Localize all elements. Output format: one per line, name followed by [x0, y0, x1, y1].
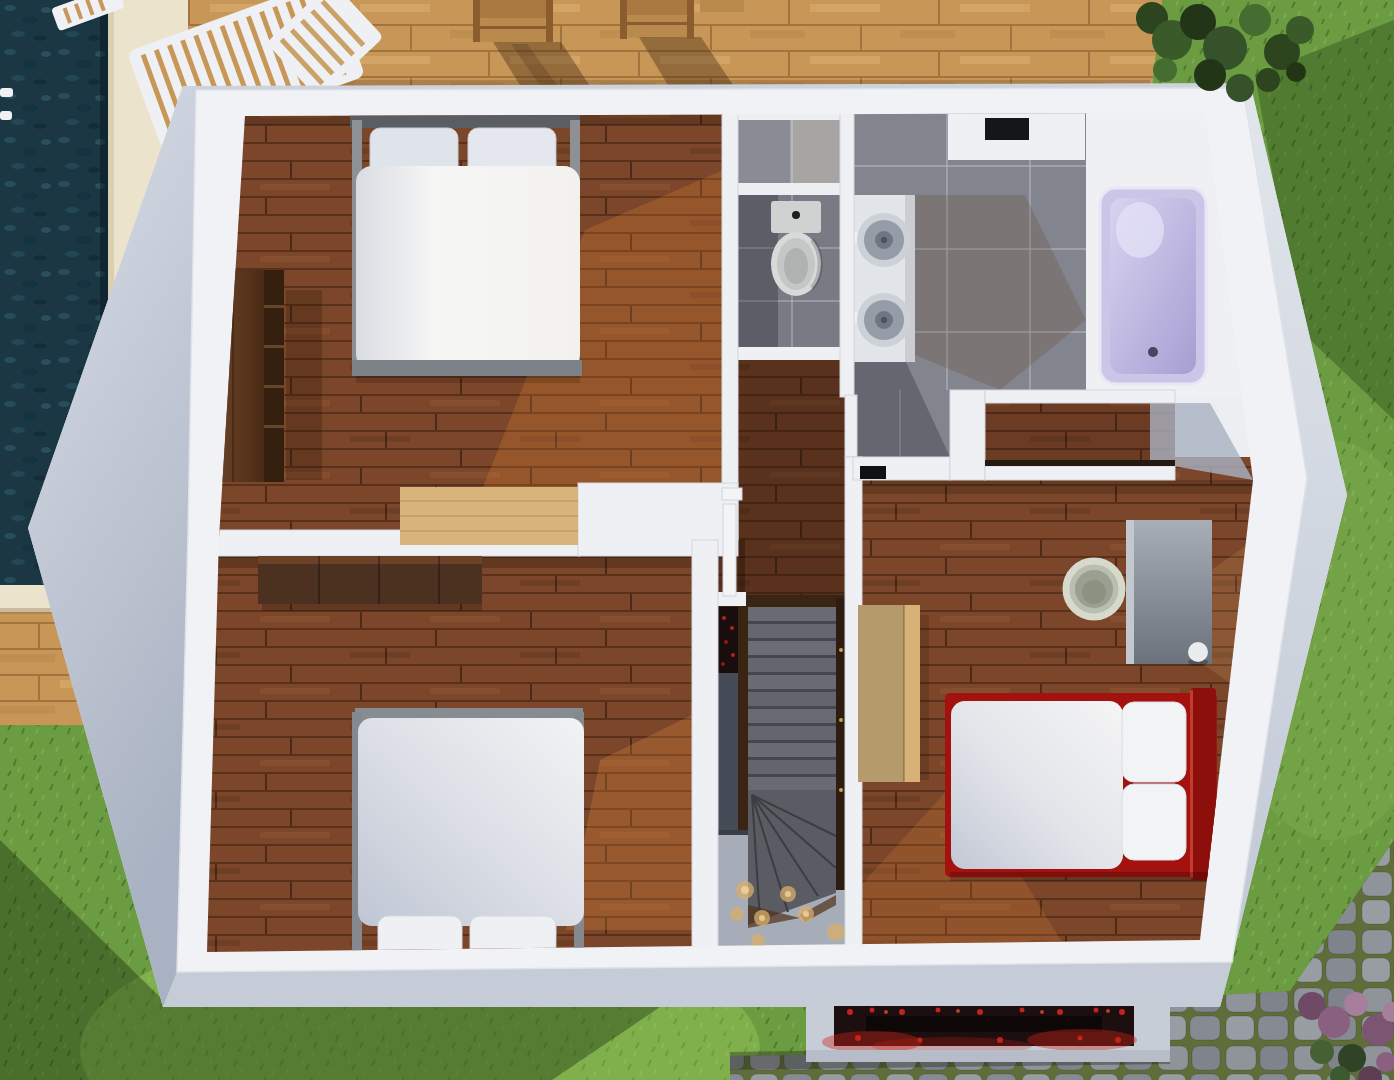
duvet: [951, 701, 1123, 869]
vanity-counter: [851, 195, 915, 362]
rug: [400, 487, 578, 545]
pillow: [1122, 784, 1186, 860]
toilet: [771, 201, 821, 296]
desk: [1126, 520, 1212, 666]
single-bed-red: [945, 688, 1217, 881]
wc-room: [738, 120, 847, 360]
pillow: [1122, 702, 1186, 782]
deck-chair-fragment: [700, 0, 744, 12]
scene-svg: [0, 0, 1394, 1080]
nook-seam: [985, 460, 1175, 466]
decor-sphere: [1188, 642, 1208, 662]
staircase-treads: [748, 607, 836, 790]
dresser: [258, 556, 482, 611]
desk-chair: [1064, 559, 1124, 619]
duvet: [356, 166, 580, 370]
duvet: [358, 718, 584, 926]
stairwell: [712, 592, 845, 954]
planter-red-flowers: [806, 998, 1170, 1062]
floor-plan-render: [0, 0, 1394, 1080]
door-threshold-slot: [860, 466, 886, 479]
wall-counter: [948, 110, 1085, 160]
staircase-winders: [748, 790, 836, 928]
sideboard: [858, 605, 929, 782]
stair-void: [718, 607, 738, 673]
